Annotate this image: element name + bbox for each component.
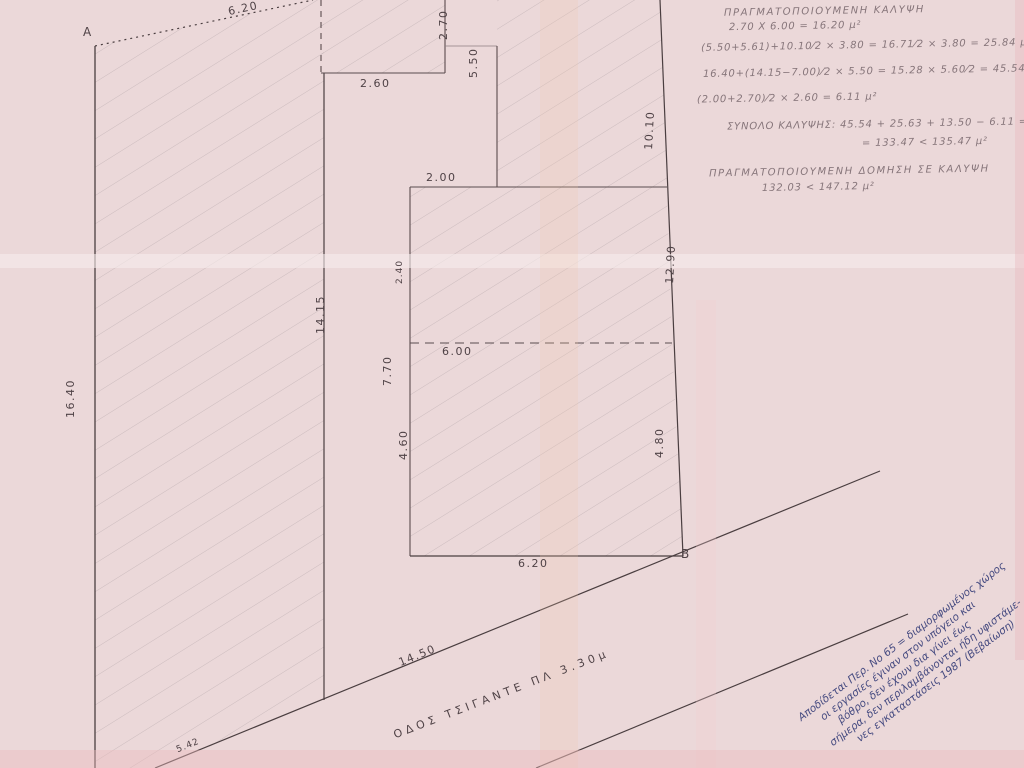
hatched-parcel-top-middle [321,0,445,73]
plan-drawing [0,0,1024,768]
dim-right-boundary-upper: 10.10 [643,110,657,150]
dim-right-boundary-lower: 12.90 [664,244,678,284]
calc-total-result: = 133.47 < 135.47 μ² [862,136,988,149]
dim-internal-dashed: 6.00 [442,346,473,358]
calc-final-result: 132.03 < 147.12 μ² [762,181,875,194]
dim-upper-right-vertical: 5.50 [468,48,480,79]
dim-mid-left-vertical: 7.70 [382,356,394,387]
dim-lower-right-vertical: 4.80 [654,428,666,459]
dim-parallelogram-right: 14.15 [315,295,327,334]
hatched-parcel-top-right [497,0,667,187]
hatched-parcel-lower [410,343,683,556]
scanned-survey-plan: Α Β 6.20 2.60 2.00 6.00 6.20 2.70 5.50 1… [0,0,1024,768]
hatched-parcel-middle [410,187,672,343]
dim-step-horizontal: 2.60 [360,78,391,90]
point-a-label: Α [83,26,91,38]
dim-step2-horizontal: 2.00 [426,172,457,184]
dim-mid-small-vertical: 2.40 [394,260,406,284]
dim-notch-vertical: 2.70 [438,10,450,41]
dim-parallelogram-left: 16.40 [65,379,77,418]
hatched-parcel-left [95,0,324,768]
calc-line-2: 2.70 Χ 6.00 = 16.20 μ² [729,20,861,33]
point-b-label: Β [681,548,689,560]
dim-lower-left-vertical: 4.60 [398,430,410,461]
dim-bottom-edge: 6.20 [518,558,549,570]
